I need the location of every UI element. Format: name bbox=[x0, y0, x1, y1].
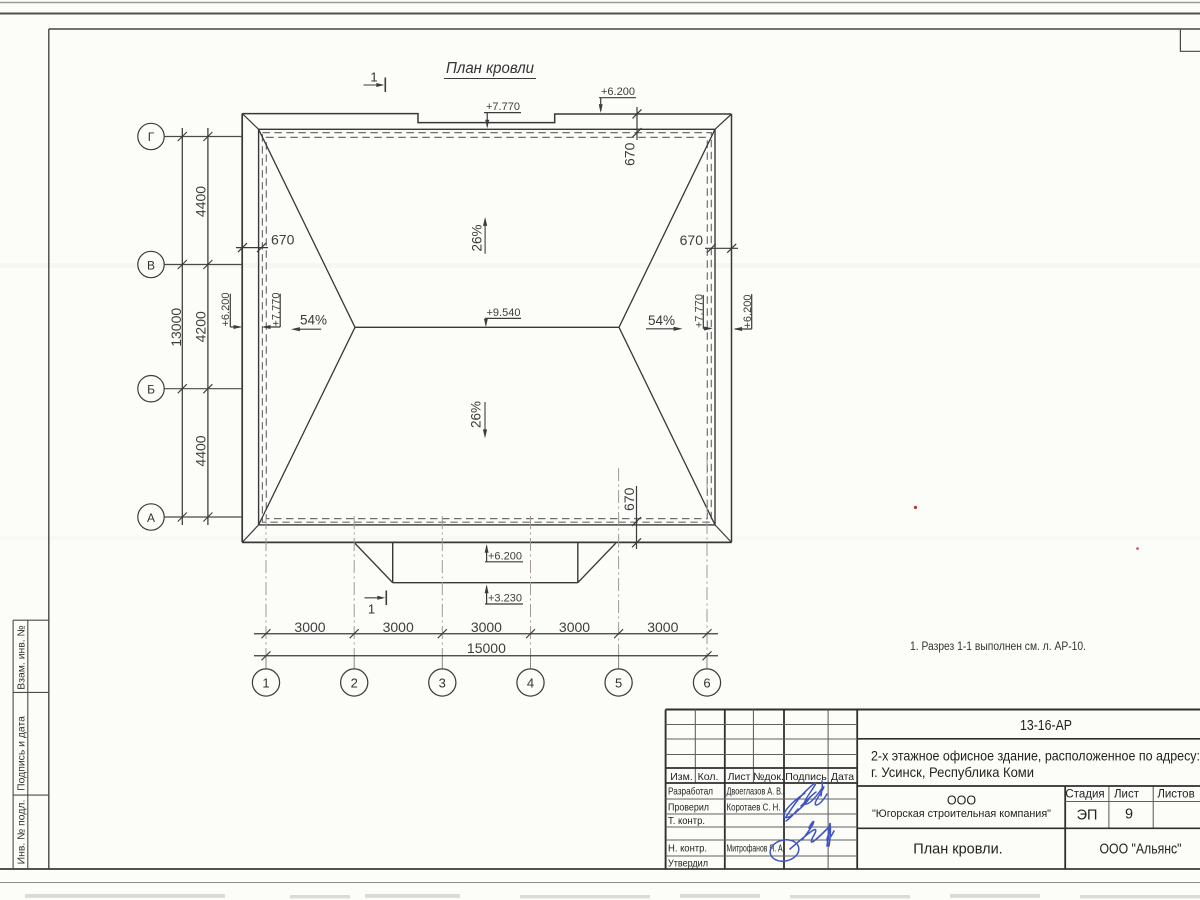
svg-text:+3.230: +3.230 bbox=[488, 593, 522, 605]
svg-text:4400: 4400 bbox=[193, 435, 209, 466]
svg-text:Дата: Дата bbox=[831, 771, 854, 783]
svg-text:Проверил: Проверил bbox=[668, 801, 709, 813]
svg-text:3000: 3000 bbox=[559, 619, 590, 635]
svg-text:54%: 54% bbox=[300, 313, 327, 328]
svg-text:1. Разрез 1-1 выполнен см. л.: 1. Разрез 1-1 выполнен см. л. АР-10. bbox=[910, 641, 1086, 653]
svg-text:2: 2 bbox=[351, 675, 358, 690]
svg-text:"Югорская строительная компани: "Югорская строительная компания" bbox=[872, 808, 1051, 820]
svg-text:9: 9 bbox=[1125, 807, 1133, 823]
svg-text:13000: 13000 bbox=[168, 308, 184, 347]
svg-text:+6.200: +6.200 bbox=[601, 86, 635, 98]
svg-text:5: 5 bbox=[615, 675, 622, 690]
svg-text:670: 670 bbox=[622, 142, 638, 166]
svg-text:+6.200: +6.200 bbox=[488, 551, 522, 563]
svg-text:1: 1 bbox=[368, 602, 375, 617]
svg-text:Митрофанов Я. А.: Митрофанов Я. А. bbox=[727, 843, 785, 855]
svg-text:3000: 3000 bbox=[471, 619, 502, 635]
svg-text:Коротаев С. Н.: Коротаев С. Н. bbox=[727, 802, 781, 813]
svg-text:ООО "Альянс": ООО "Альянс" bbox=[1100, 841, 1182, 857]
svg-text:В: В bbox=[147, 258, 155, 272]
svg-text:Взам. инв. №: Взам. инв. № bbox=[17, 625, 28, 689]
svg-text:54%: 54% bbox=[648, 313, 675, 328]
svg-text:4200: 4200 bbox=[193, 311, 209, 342]
svg-text:Подпись: Подпись bbox=[785, 771, 827, 783]
svg-text:Т. контр.: Т. контр. bbox=[668, 815, 705, 827]
svg-text:+7.770: +7.770 bbox=[694, 294, 706, 328]
svg-text:670: 670 bbox=[621, 487, 637, 511]
svg-text:3: 3 bbox=[439, 675, 446, 690]
svg-text:Изм.: Изм. bbox=[670, 771, 693, 783]
svg-text:3000: 3000 bbox=[294, 619, 325, 635]
svg-text:ООО: ООО bbox=[947, 794, 976, 808]
svg-text:Б: Б bbox=[147, 383, 155, 397]
svg-text:Разработал: Разработал bbox=[668, 786, 713, 798]
svg-text:+6.200: +6.200 bbox=[742, 295, 754, 329]
svg-text:Г: Г bbox=[148, 130, 155, 144]
svg-text:15000: 15000 bbox=[467, 640, 506, 656]
svg-text:+9.540: +9.540 bbox=[487, 307, 521, 319]
svg-text:3000: 3000 bbox=[383, 619, 414, 635]
svg-text:6: 6 bbox=[703, 675, 710, 690]
svg-text:Двоеглазов А. В.: Двоеглазов А. В. bbox=[727, 787, 784, 798]
svg-text:Стадия: Стадия bbox=[1065, 789, 1104, 801]
svg-text:г. Усинск, Республика Коми: г. Усинск, Республика Коми bbox=[871, 764, 1034, 780]
svg-text:4: 4 bbox=[527, 675, 534, 690]
svg-text:ЭП: ЭП bbox=[1077, 808, 1098, 824]
svg-text:№док.: №док. bbox=[753, 771, 784, 783]
svg-text:Лист: Лист bbox=[728, 771, 751, 783]
svg-text:Н. контр.: Н. контр. bbox=[668, 843, 707, 855]
svg-text:+6.200: +6.200 bbox=[220, 293, 232, 327]
svg-text:13-16-АР: 13-16-АР bbox=[1020, 718, 1072, 734]
svg-text:670: 670 bbox=[680, 232, 704, 248]
svg-text:1: 1 bbox=[370, 70, 377, 85]
svg-text:4400: 4400 bbox=[193, 186, 209, 217]
svg-text:Утвердил: Утвердил bbox=[668, 857, 708, 869]
svg-text:26%: 26% bbox=[469, 401, 484, 428]
svg-text:3000: 3000 bbox=[647, 619, 678, 635]
svg-text:Лист: Лист bbox=[1114, 789, 1140, 801]
svg-text:А: А bbox=[147, 511, 155, 525]
svg-text:Подпись и дата: Подпись и дата bbox=[17, 716, 28, 791]
svg-text:+7.770: +7.770 bbox=[270, 293, 282, 327]
svg-text:План кровли.: План кровли. bbox=[913, 841, 1002, 857]
svg-text:План кровли: План кровли bbox=[446, 60, 534, 77]
svg-text:+7.770: +7.770 bbox=[486, 101, 520, 113]
svg-text:2-х этажное офисное здание, ра: 2-х этажное офисное здание, расположенно… bbox=[871, 748, 1200, 764]
svg-text:Инв. № подл.: Инв. № подл. bbox=[17, 800, 28, 865]
svg-text:1: 1 bbox=[262, 675, 269, 690]
svg-text:Кол.: Кол. bbox=[698, 771, 719, 783]
svg-text:670: 670 bbox=[271, 232, 295, 248]
svg-text:26%: 26% bbox=[470, 224, 485, 251]
svg-text:Листов: Листов bbox=[1157, 789, 1194, 801]
